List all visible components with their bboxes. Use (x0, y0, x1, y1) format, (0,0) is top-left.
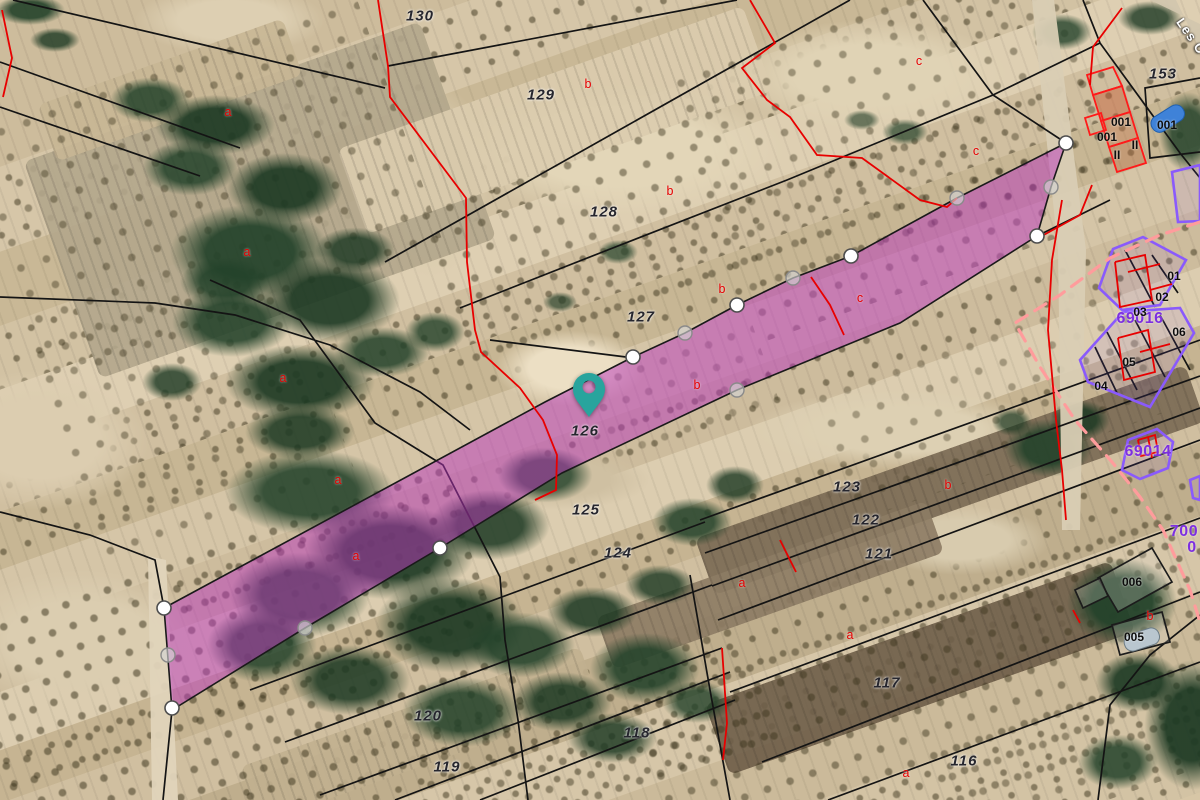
building-number-label: 001 (1097, 130, 1117, 144)
parcel-number-label: 127 (627, 309, 655, 326)
parcel-number-label: 126 (571, 423, 599, 440)
parcel-number-label: 124 (604, 545, 632, 562)
map-canvas[interactable]: 1301291281271261251241231221211201191181… (0, 0, 1200, 800)
parcel-number-label: 128 (590, 204, 618, 221)
subparcel-letter-label: c (973, 144, 979, 158)
subparcel-letter-label: a (280, 371, 287, 385)
building-number-label: II (1132, 138, 1139, 152)
building-number-label: 06 (1172, 325, 1185, 339)
parcel-number-label: 119 (434, 759, 461, 776)
subparcel-letter-label: a (903, 766, 910, 780)
parcel-number-label: 153 (1149, 66, 1177, 83)
subparcel-letter-label: b (694, 378, 701, 392)
subparcel-letter-label: a (353, 549, 360, 563)
building-number-label: 04 (1094, 379, 1107, 393)
subparcel-letter-label: b (585, 77, 592, 91)
parcel-number-label: 117 (874, 675, 901, 692)
subparcel-letter-label: a (225, 105, 232, 119)
building-number-label: 001 (1157, 118, 1177, 132)
subparcel-letter-label: a (847, 628, 854, 642)
building-number-label: II (1114, 148, 1121, 162)
subparcel-letter-label: b (719, 282, 726, 296)
parcel-number-label: 129 (527, 87, 555, 104)
building-number-label: 01 (1167, 269, 1180, 283)
map-labels: 1301291281271261251241231221211201191181… (0, 0, 1200, 800)
parcel-number-label: 122 (852, 512, 880, 529)
subparcel-letter-label: b (667, 184, 674, 198)
parcel-number-label: 121 (865, 546, 893, 563)
parcel-number-label: 130 (406, 8, 434, 25)
subparcel-letter-label: a (244, 245, 251, 259)
parcel-number-label: 118 (624, 725, 651, 742)
urban-zone-label: 700 (1170, 523, 1198, 541)
urban-zone-label: 0 (1187, 539, 1196, 557)
parcel-number-label: 116 (951, 753, 978, 770)
subparcel-letter-label: a (335, 473, 342, 487)
building-number-label: 03 (1133, 305, 1146, 319)
subparcel-letter-label: b (945, 478, 952, 492)
subparcel-letter-label: a (739, 576, 746, 590)
street-name-label: Les C (1173, 15, 1200, 57)
subparcel-letter-label: b (1147, 609, 1154, 623)
building-number-label: 005 (1124, 630, 1144, 644)
parcel-number-label: 120 (414, 708, 442, 725)
building-number-label: 02 (1155, 290, 1168, 304)
subparcel-letter-label: c (857, 291, 863, 305)
building-number-label: 006 (1122, 575, 1142, 589)
parcel-number-label: 123 (833, 479, 861, 496)
building-number-label: 001 (1111, 115, 1131, 129)
urban-zone-label: 69016 (1117, 310, 1164, 328)
building-number-label: 05 (1122, 355, 1135, 369)
urban-zone-label: 69014 (1125, 443, 1172, 461)
subparcel-letter-label: c (916, 54, 922, 68)
parcel-number-label: 125 (572, 502, 600, 519)
